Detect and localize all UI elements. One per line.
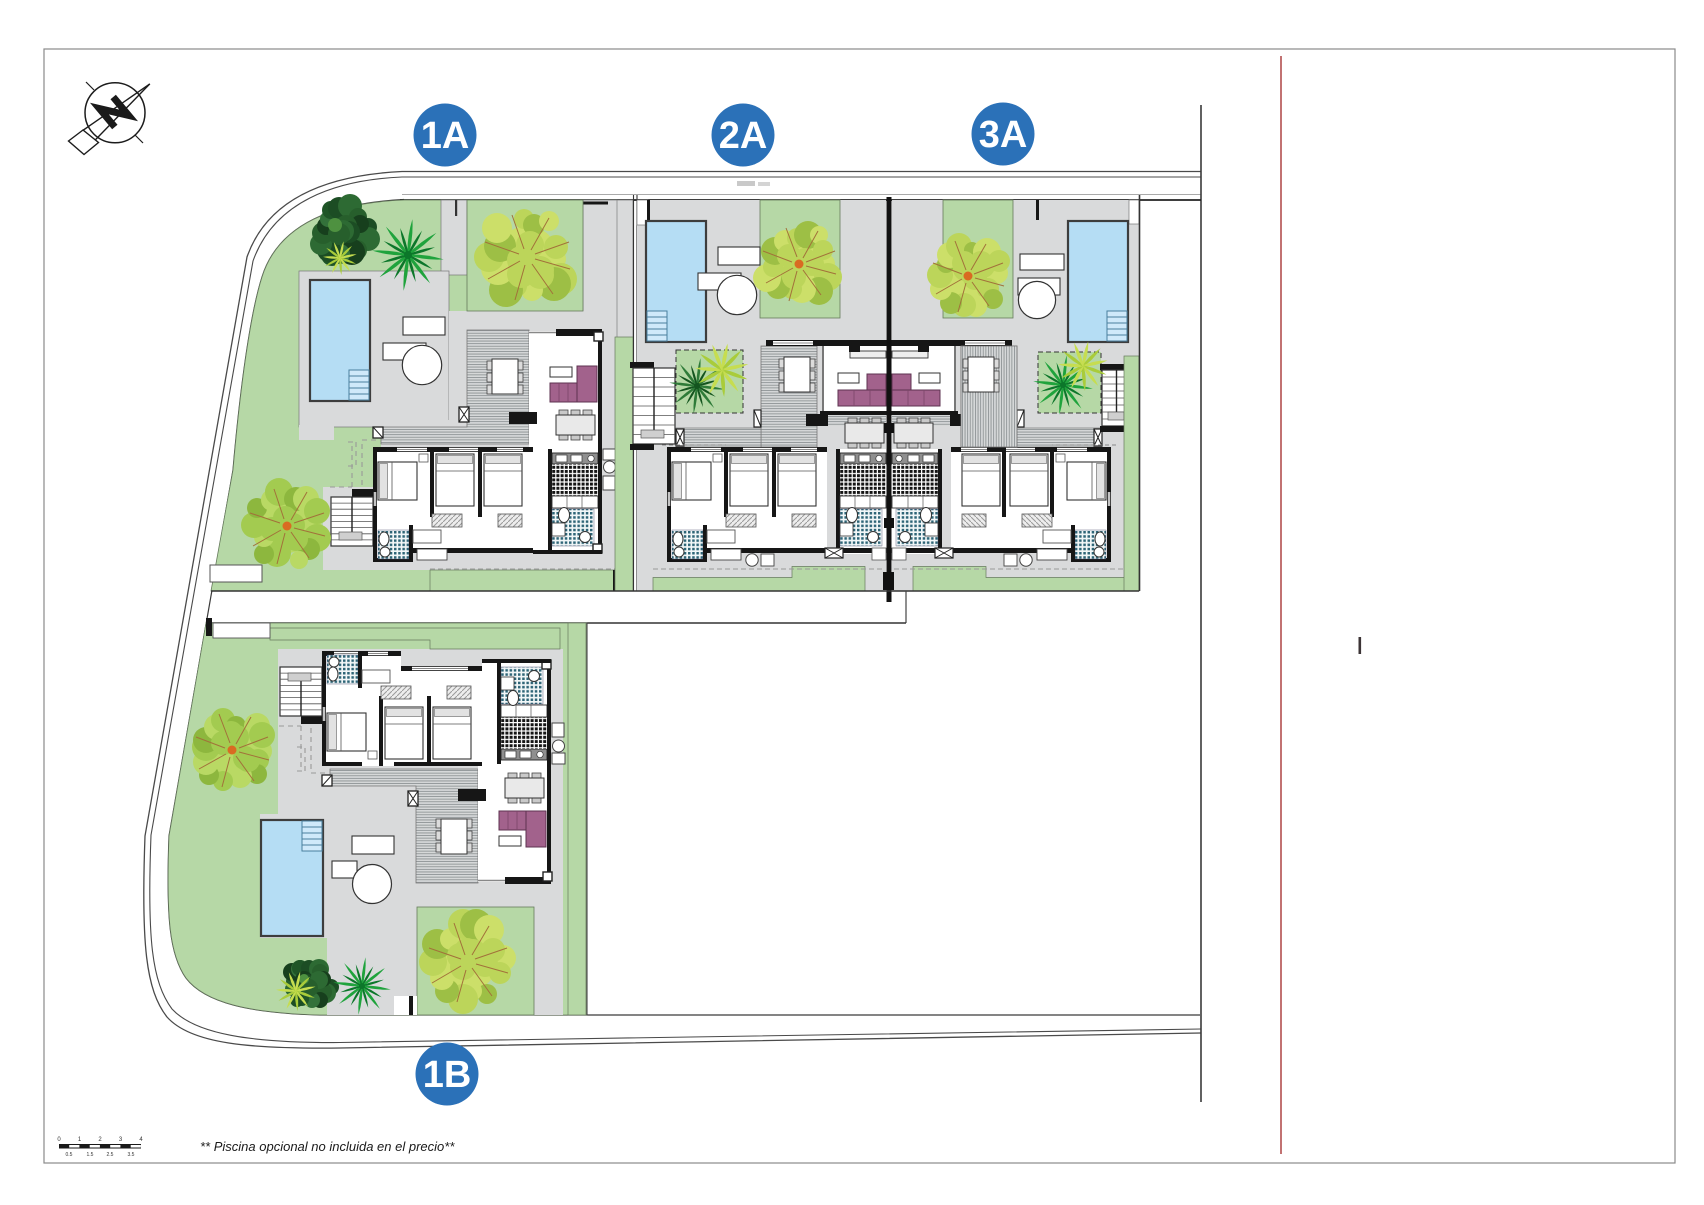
- svg-text:** Piscina opcional no incluid: ** Piscina opcional no incluida en el pr…: [200, 1139, 455, 1154]
- svg-text:2.5: 2.5: [107, 1152, 114, 1158]
- svg-text:1A: 1A: [421, 115, 470, 157]
- svg-text:1.5: 1.5: [87, 1152, 94, 1158]
- svg-text:3A: 3A: [979, 114, 1028, 156]
- svg-text:3.5: 3.5: [128, 1152, 135, 1158]
- svg-text:0.5: 0.5: [66, 1152, 73, 1158]
- svg-text:2A: 2A: [719, 115, 768, 157]
- svg-text:1B: 1B: [423, 1054, 472, 1096]
